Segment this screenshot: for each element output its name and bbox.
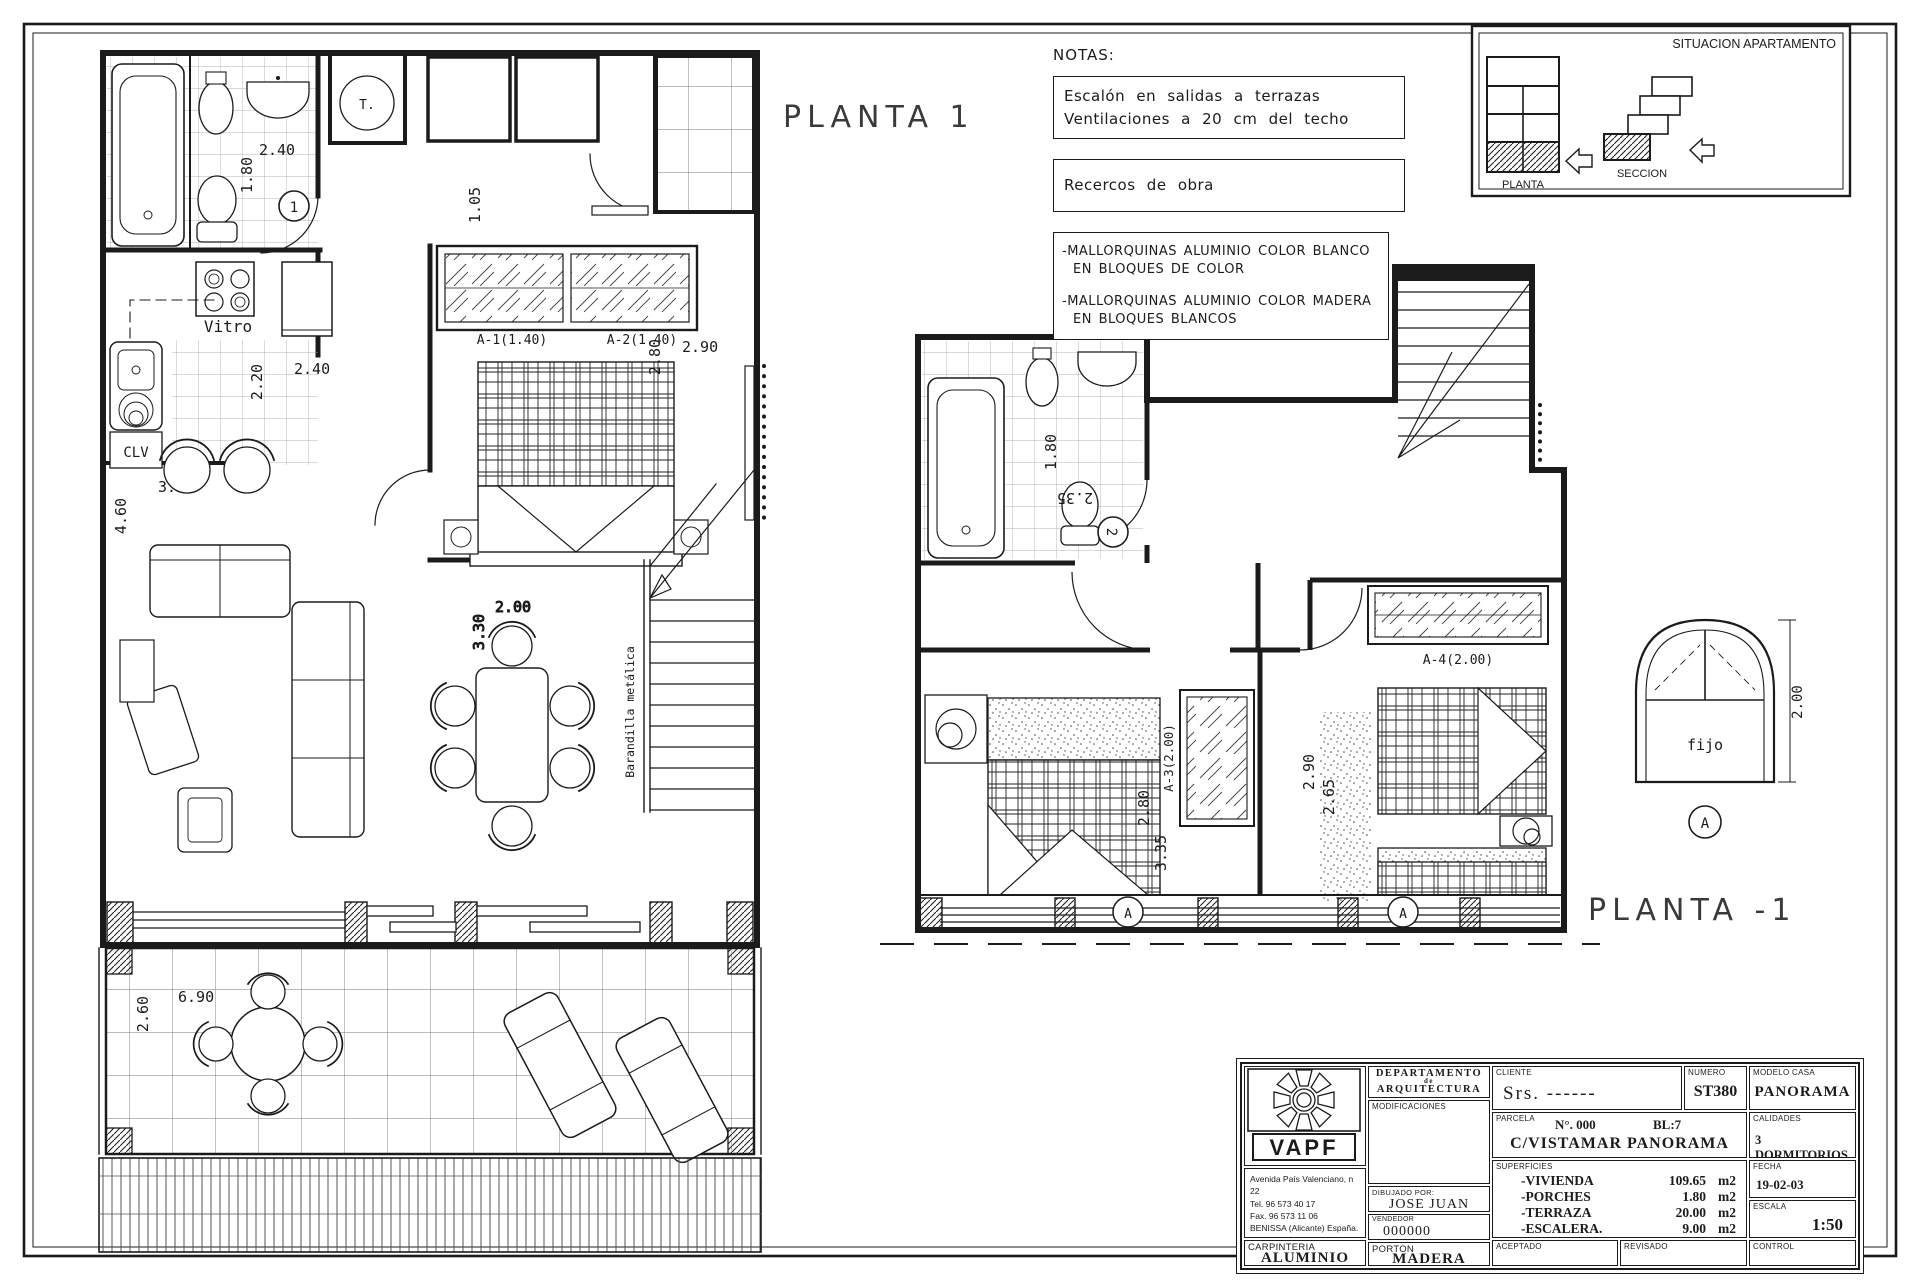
logo-cell: VAPF xyxy=(1244,1066,1366,1166)
note-line: EN BLOQUES DE COLOR xyxy=(1062,261,1380,279)
dim-bedroom-width: 2.90 xyxy=(682,338,718,356)
department-line3: ARQUITECTURA xyxy=(1369,1085,1489,1094)
cliente-label: CLIENTE xyxy=(1496,1068,1532,1077)
superficie-row: -TERRAZA 20.00 m2 xyxy=(1493,1205,1746,1221)
vendedor-label: VENDEDOR xyxy=(1372,1216,1414,1223)
parcela-cell: PARCELA N°. 000 BL:7 C/VISTAMAR PANORAMA xyxy=(1492,1112,1747,1158)
plan1-entry-porch xyxy=(590,57,757,215)
note-line: Ventilaciones a 20 cm del techo xyxy=(1064,108,1394,131)
clv-label: CLV xyxy=(123,445,149,461)
control-label: CONTROL xyxy=(1753,1242,1794,1251)
note-line: -MALLORQUINAS ALUMINIO COLOR BLANCO xyxy=(1062,243,1380,261)
address-line: Avenida País Valenciano, n 22 xyxy=(1250,1173,1362,1198)
note-line: EN BLOQUES BLANCOS xyxy=(1062,311,1380,329)
department-cell: DEPARTAMENTO de ARQUITECTURA xyxy=(1368,1066,1490,1098)
superficie-unit: m2 xyxy=(1706,1173,1736,1189)
parcela-bloque: BL:7 xyxy=(1653,1117,1681,1133)
section-mark-a: A xyxy=(1399,907,1407,922)
superficie-unit: m2 xyxy=(1706,1205,1736,1221)
room-number-2: 2 xyxy=(1103,528,1119,536)
note-box-escalon: Escalón en salidas a terrazas Ventilacio… xyxy=(1053,76,1405,139)
note-box-mallorquinas: -MALLORQUINAS ALUMINIO COLOR BLANCO EN B… xyxy=(1053,232,1389,341)
modelo-value: PANORAMA xyxy=(1750,1084,1855,1101)
plan1-terrace: 6.90 2.60 xyxy=(99,948,761,1166)
superficies-cell: SUPERFICIES -VIVIENDA 109.65 m2 -PORCHES… xyxy=(1492,1160,1747,1238)
nightstand xyxy=(925,695,987,763)
dim-bedroom2-depth: 2.65 xyxy=(1320,779,1338,815)
dim-bath2-length: 2.35 xyxy=(1057,489,1093,507)
numero-cell: NUMERO ST380 xyxy=(1684,1066,1747,1110)
dim-dining-depth: 3.30 xyxy=(470,614,488,650)
modificaciones-label: MODIFICACIONES xyxy=(1372,1102,1446,1111)
address-cell: Avenida País Valenciano, n 22 Tel. 96 57… xyxy=(1244,1168,1366,1238)
wall-post xyxy=(345,902,367,944)
detail-height-dim: 2.00 xyxy=(1790,685,1806,719)
calidades-cell: CALIDADES 3 DORMITORIOS xyxy=(1749,1112,1856,1158)
revisado-cell: REVISADO xyxy=(1620,1240,1747,1266)
escala-cell: ESCALA 1:50 xyxy=(1749,1200,1856,1238)
escala-value: 1:50 xyxy=(1750,1215,1855,1235)
plan-minus1-bottom-wall: A A xyxy=(880,895,1600,944)
sliding-door-panel xyxy=(390,922,456,932)
plan1-bathroom: 2.40 1.80 1 xyxy=(107,57,320,253)
plan1-top-bays xyxy=(428,57,598,141)
numero-label: NUMERO xyxy=(1688,1068,1725,1077)
bedroom-door-arc xyxy=(375,470,430,525)
note-line: -MALLORQUINAS ALUMINIO COLOR MADERA xyxy=(1062,293,1380,311)
bidet xyxy=(1026,358,1058,406)
sofa-3seat xyxy=(292,602,364,837)
cliente-value: Srs. ------ xyxy=(1503,1083,1597,1105)
vendedor-cell: VENDEDOR 000000 xyxy=(1368,1214,1490,1240)
carpinteria-value: ALUMINIO xyxy=(1245,1250,1365,1266)
plan1-deck xyxy=(99,1158,761,1252)
address-line: BENISSA (Alicante) España. xyxy=(1250,1222,1362,1234)
plan-minus1-bedroom1: 2.80 3.35 A-3(2.00) xyxy=(925,650,1260,895)
fijo-label: fijo xyxy=(1687,736,1723,754)
round-chair xyxy=(224,447,270,493)
dim-kitchen-depth: 2.20 xyxy=(248,364,266,400)
situacion-planta-label: PLANTA xyxy=(1502,179,1545,191)
situacion-box: SITUACION APARTAMENTO PLANTA SECCION xyxy=(1472,26,1850,196)
dibujado-cell: DIBUJADO POR: JOSE JUAN xyxy=(1368,1186,1490,1212)
porton-cell: PORTON MADERA xyxy=(1368,1242,1490,1266)
detail-ref-mark: A xyxy=(1701,816,1710,832)
plan1-termo-closet: T. xyxy=(330,57,405,143)
fecha-value: 19-02-03 xyxy=(1750,1177,1855,1193)
plan-minus1-drawing: 1.80 2.35 2 2.80 xyxy=(880,267,1600,944)
dim-bedroom-depth: 2.80 xyxy=(646,339,664,375)
superficie-unit: m2 xyxy=(1706,1221,1736,1237)
vendedor-value: 000000 xyxy=(1369,1224,1489,1240)
modificaciones-cell: MODIFICACIONES xyxy=(1368,1100,1490,1184)
note-line: Escalón en salidas a terrazas xyxy=(1064,85,1394,108)
notes-panel: NOTAS: Escalón en salidas a terrazas Ven… xyxy=(1053,46,1393,360)
address-line: Tel. 96 573 40 17 xyxy=(1250,1198,1362,1210)
room-number-1: 1 xyxy=(290,200,298,216)
company-name: VAPF xyxy=(1269,1135,1338,1160)
note-line: Recercos de obra xyxy=(1064,174,1394,197)
wall-post xyxy=(650,902,672,944)
superficie-row: -PORCHES 1.80 m2 xyxy=(1493,1189,1746,1205)
superficie-row: -ESCALERA. 9.00 m2 xyxy=(1493,1221,1746,1237)
toilet xyxy=(197,176,237,242)
sliding-door-panel xyxy=(530,922,640,932)
superficie-name: -PORCHES xyxy=(1521,1189,1654,1205)
wall-post xyxy=(455,902,477,944)
window-a1-label: A-1(1.40) xyxy=(477,333,547,348)
bedroom-window xyxy=(745,366,754,520)
carpinteria-cell: CARPINTERIA ALUMINIO xyxy=(1244,1240,1366,1266)
plan1-bottom-wall xyxy=(107,902,753,944)
fecha-label: FECHA xyxy=(1753,1162,1782,1171)
calidades-label: CALIDADES xyxy=(1753,1114,1801,1123)
plan-minus1-title: PLANTA -1 xyxy=(1588,893,1796,928)
superficie-unit: m2 xyxy=(1706,1189,1736,1205)
window-detail: fijo 2.00 A xyxy=(1636,620,1806,838)
dim-plan1-bath-width: 2.40 xyxy=(259,141,295,159)
single-bed xyxy=(1378,848,1546,895)
plan1-dining: 2.00 3.30 xyxy=(431,598,594,850)
superficie-name: -ESCALERA. xyxy=(1521,1221,1654,1237)
situacion-title: SITUACION APARTAMENTO xyxy=(1672,37,1836,51)
dim-kitchen-width: 2.40 xyxy=(294,360,330,378)
plan1-kitchen: Vitro CLV 2.20 2.40 xyxy=(107,255,332,468)
address-line: Fax. 96 573 11 06 xyxy=(1250,1210,1362,1222)
dim-terrace-depth: 2.60 xyxy=(134,996,152,1032)
wall-post xyxy=(727,902,753,944)
plan-minus1-stairs xyxy=(1395,267,1540,465)
termo-label: T. xyxy=(359,98,375,113)
porton-value: MADERA xyxy=(1369,1251,1489,1266)
notes-heading: NOTAS: xyxy=(1053,46,1393,64)
double-bed xyxy=(444,362,708,566)
sliding-door-panel xyxy=(477,906,587,916)
dim-plan1-hall: 1.05 xyxy=(466,187,484,223)
entry-door-leaf xyxy=(592,206,648,215)
kitchen-sink-unit xyxy=(110,342,162,430)
stove xyxy=(196,262,254,316)
window-a2-label: A-2(1.40) xyxy=(607,333,677,348)
drawing-sheet: 2.40 1.80 1 T. 1.05 xyxy=(0,0,1920,1280)
bedroom1-door-arc xyxy=(1072,572,1150,650)
single-bed xyxy=(1378,688,1546,814)
plan1-living xyxy=(120,439,364,852)
escala-label: ESCALA xyxy=(1753,1202,1786,1211)
parcela-value: C/VISTAMAR PANORAMA xyxy=(1493,1135,1746,1153)
plan1-title: PLANTA 1 xyxy=(783,100,975,135)
control-cell: CONTROL xyxy=(1749,1240,1856,1266)
note-gap xyxy=(1062,279,1380,293)
dim-dining-width: 2.00 xyxy=(495,598,531,616)
superficie-row: -VIVIENDA 109.65 m2 xyxy=(1493,1173,1746,1189)
parcela-numero: N°. 000 xyxy=(1555,1117,1596,1133)
armario-a3-label: A-3(2.00) xyxy=(1161,724,1176,792)
window-a4-label: A-4(2.00) xyxy=(1423,653,1493,668)
window-a4: A-4(2.00) xyxy=(1368,586,1548,668)
dibujado-label: DIBUJADO POR: xyxy=(1372,1188,1434,1197)
superficie-value: 1.80 xyxy=(1654,1189,1706,1205)
entry-door-arc xyxy=(590,154,648,212)
superficies-label: SUPERFICIES xyxy=(1496,1162,1553,1171)
numero-value: ST380 xyxy=(1685,1083,1746,1101)
note-box-recercos: Recercos de obra xyxy=(1053,159,1405,212)
stair-rail-label: Barandilla metálica xyxy=(623,646,637,778)
dim-bedroom1-width: 2.80 xyxy=(1135,790,1153,826)
modelo-label: MODELO CASA xyxy=(1753,1068,1815,1077)
superficie-value: 9.00 xyxy=(1654,1221,1706,1237)
plan-minus1-bedroom2: A-4(2.00) 2.90 2.65 xyxy=(1300,586,1552,902)
title-block: VAPF Avenida País Valenciano, n 22 Tel. … xyxy=(1236,1058,1864,1274)
dim-terrace-width: 6.90 xyxy=(178,988,214,1006)
dim-bath2-width: 1.80 xyxy=(1042,434,1060,470)
superficie-value: 20.00 xyxy=(1654,1205,1706,1221)
plan-minus1-bathroom: 1.80 2.35 2 xyxy=(918,337,1147,563)
side-table xyxy=(120,640,154,702)
fridge xyxy=(282,262,332,336)
superficie-name: -VIVIENDA xyxy=(1521,1173,1654,1189)
sliding-door-panel xyxy=(367,906,433,916)
situacion-seccion-label: SECCION xyxy=(1617,168,1667,180)
dim-bedroom2-width: 2.90 xyxy=(1300,754,1318,790)
plan1-drawing: 2.40 1.80 1 T. 1.05 xyxy=(99,53,764,1252)
vitro-label: Vitro xyxy=(204,317,252,336)
revisado-label: REVISADO xyxy=(1624,1242,1668,1251)
section-mark-a: A xyxy=(1124,907,1132,922)
dim-bedroom1-depth: 3.35 xyxy=(1152,835,1170,871)
wall-post xyxy=(107,902,133,944)
aceptado-cell: ACEPTADO xyxy=(1492,1240,1618,1266)
dim-living-height: 4.60 xyxy=(112,498,130,534)
dibujado-value: JOSE JUAN xyxy=(1369,1197,1489,1212)
aceptado-label: ACEPTADO xyxy=(1496,1242,1542,1251)
dim-plan1-bath-height: 1.80 xyxy=(238,157,256,193)
title-block-inner: VAPF Avenida País Valenciano, n 22 Tel. … xyxy=(1240,1062,1860,1270)
round-chair xyxy=(164,447,210,493)
modelo-cell: MODELO CASA PANORAMA xyxy=(1749,1066,1856,1110)
parcela-label: PARCELA xyxy=(1496,1114,1535,1123)
superficie-value: 109.65 xyxy=(1654,1173,1706,1189)
superficie-name: -TERRAZA xyxy=(1521,1205,1654,1221)
dining-table xyxy=(476,668,548,802)
plan1-bedroom: A-1(1.40) A-2(1.40) 2.80 2.90 xyxy=(375,246,764,566)
cliente-cell: CLIENTE Srs. ------ xyxy=(1492,1066,1682,1110)
fecha-cell: FECHA 19-02-03 xyxy=(1749,1160,1856,1198)
vapf-logo-icon: VAPF xyxy=(1245,1067,1363,1163)
armario-a3: A-3(2.00) xyxy=(1161,690,1254,826)
calidades-value: 3 DORMITORIOS xyxy=(1750,1133,1855,1158)
